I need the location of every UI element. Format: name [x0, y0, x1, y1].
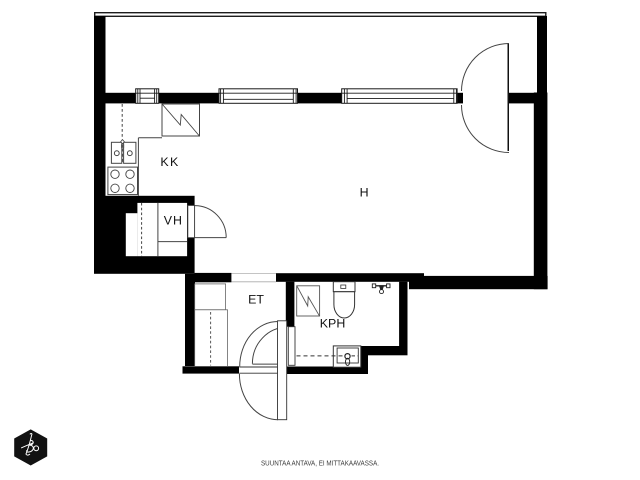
svg-text:SUUNTAA ANTAVA, EI MITTAKAAVAS: SUUNTAA ANTAVA, EI MITTAKAAVASSA. [261, 460, 379, 467]
svg-text:ET: ET [248, 293, 264, 307]
svg-text:KK: KK [160, 155, 179, 169]
svg-text:VH: VH [164, 214, 183, 228]
svg-text:H: H [360, 186, 369, 200]
svg-text:KPH: KPH [320, 317, 345, 331]
